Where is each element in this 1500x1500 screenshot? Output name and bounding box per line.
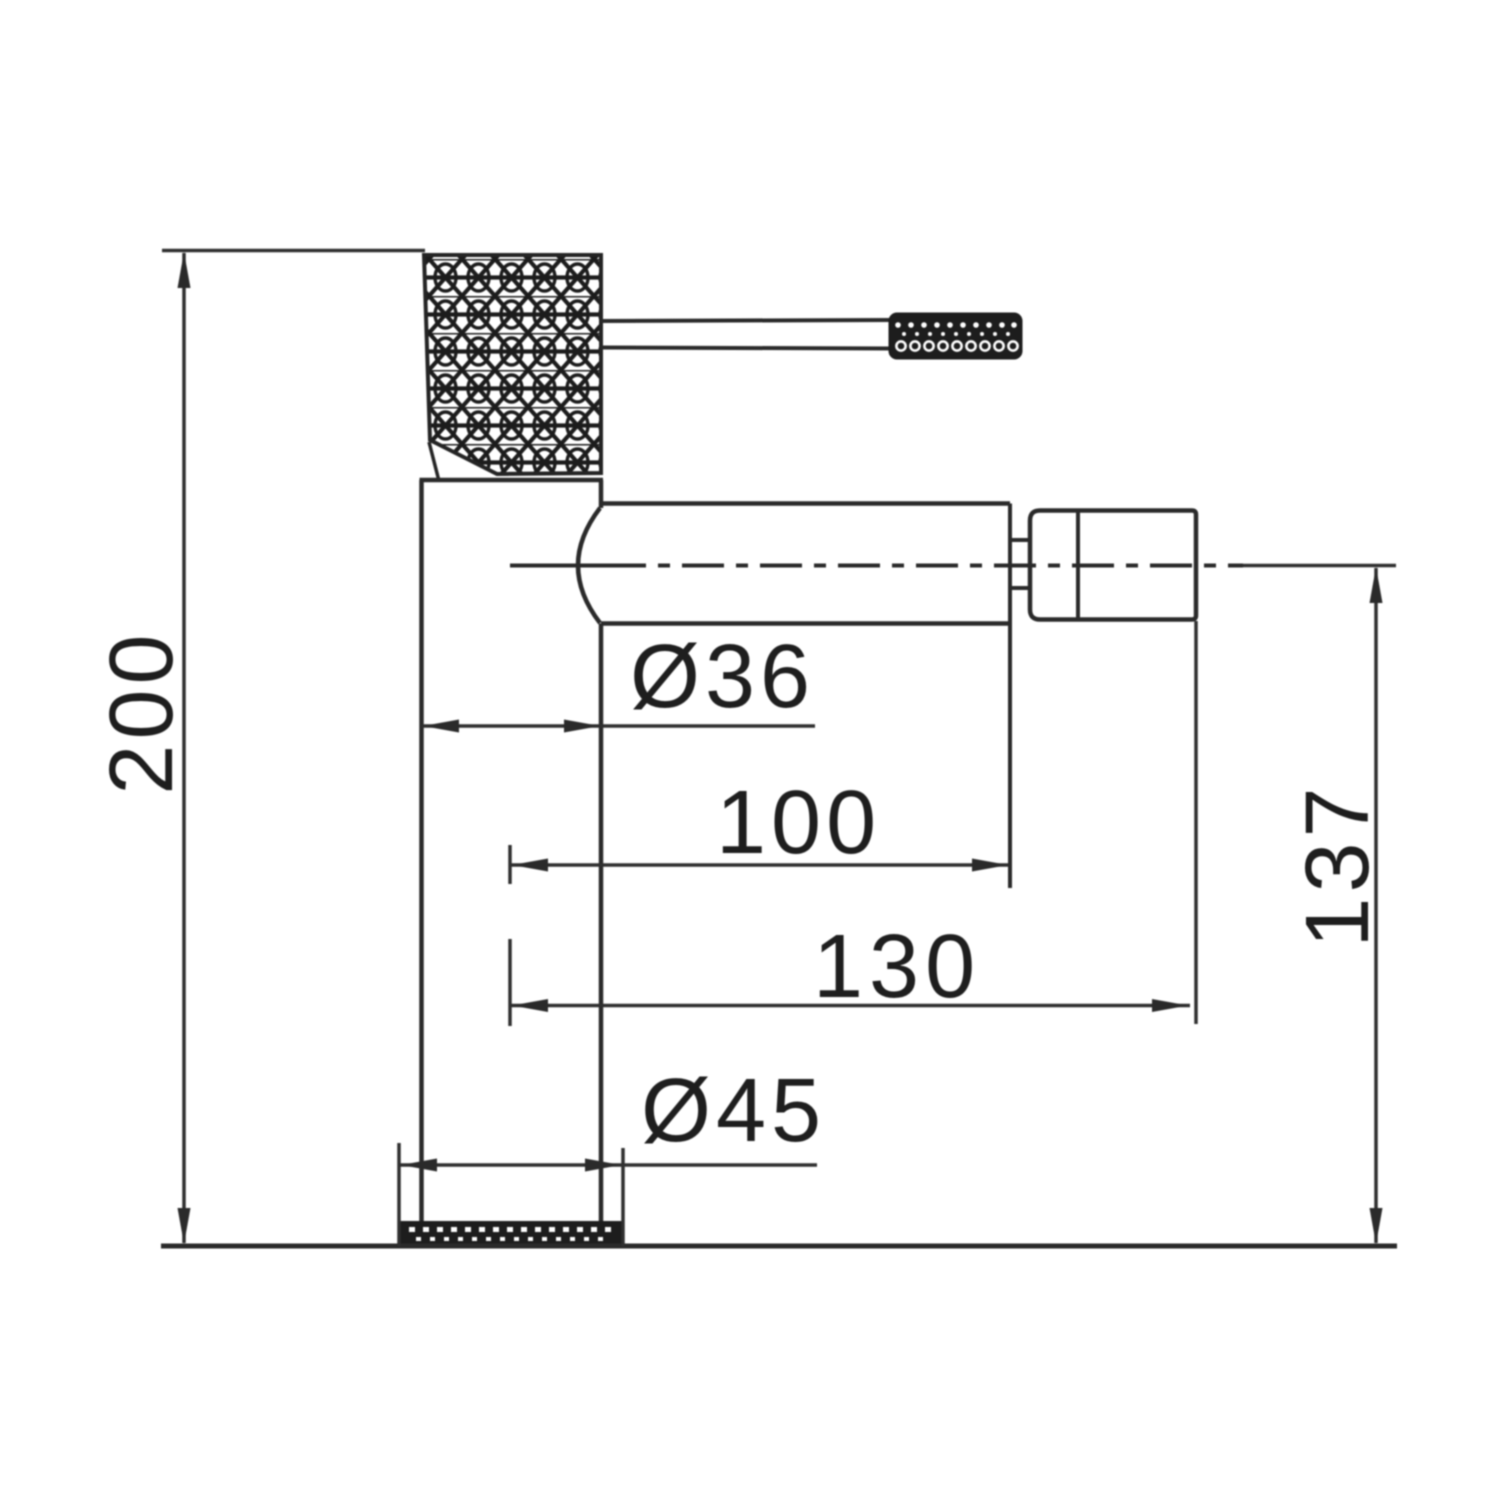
svg-text:130: 130 bbox=[813, 917, 981, 1017]
svg-text:100: 100 bbox=[716, 773, 881, 873]
svg-text:137: 137 bbox=[1288, 782, 1388, 947]
svg-text:Ø36: Ø36 bbox=[630, 627, 815, 727]
svg-text:200: 200 bbox=[92, 629, 192, 794]
svg-text:Ø45: Ø45 bbox=[641, 1061, 826, 1161]
